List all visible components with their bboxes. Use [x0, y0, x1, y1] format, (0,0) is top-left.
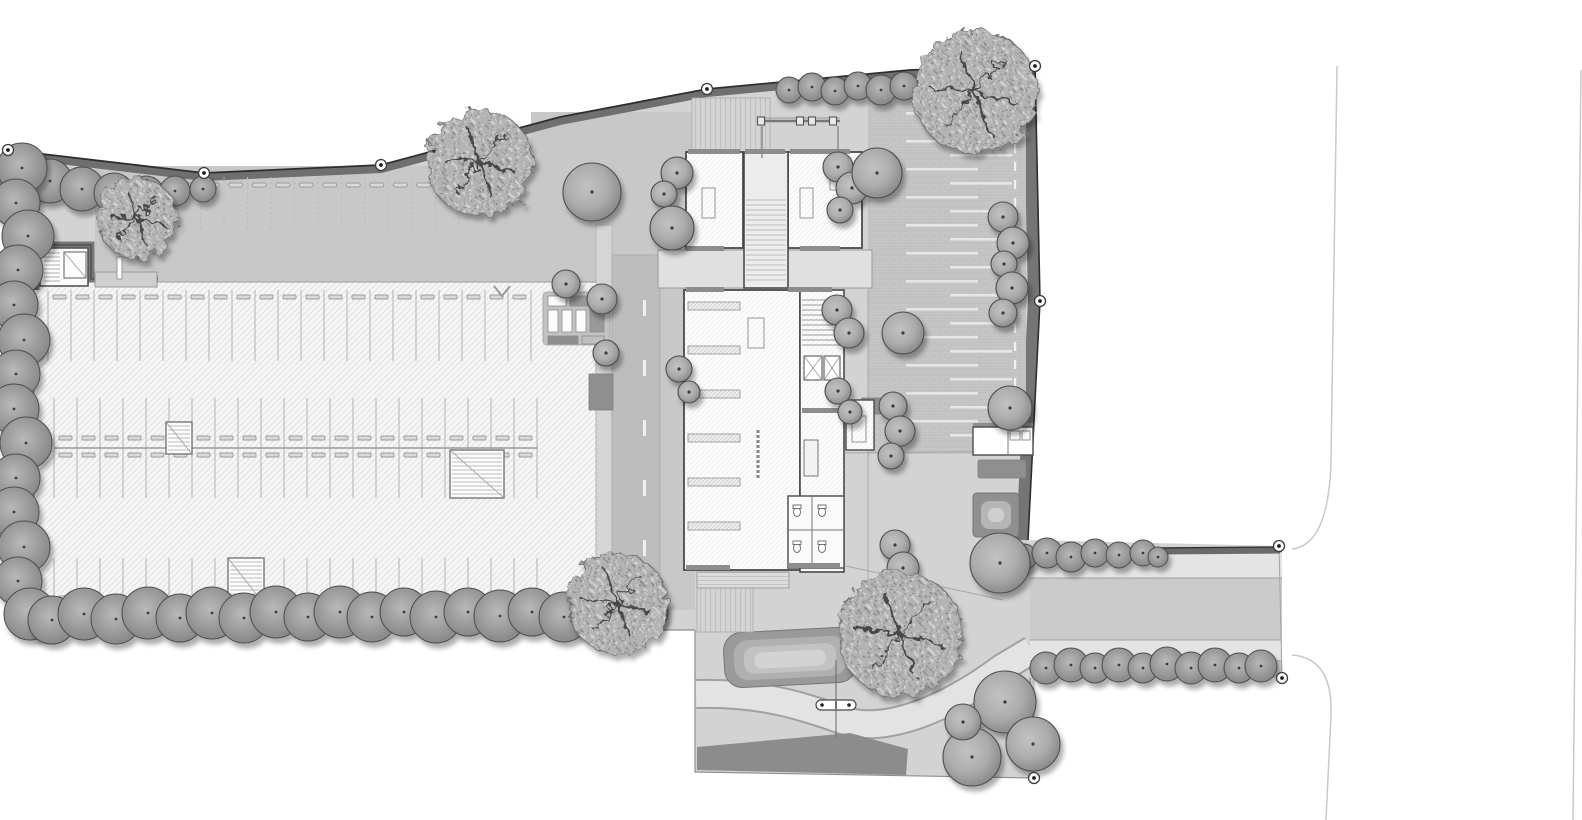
tree-center-dot — [590, 190, 593, 193]
grass-joint-stripe — [906, 280, 978, 283]
wall-sill — [788, 287, 832, 292]
wall-sill — [686, 565, 730, 570]
wheel-stop — [306, 295, 319, 299]
wheel-stop — [427, 453, 440, 457]
grass-joint-stripe — [950, 154, 1012, 157]
wheel-stop — [513, 295, 526, 299]
shrub-center-dot — [403, 611, 406, 614]
tree-center-dot — [600, 297, 603, 300]
wheel-stop — [381, 453, 394, 457]
wheel-stop — [358, 453, 371, 457]
wheel-stop — [214, 295, 227, 299]
wheel-stop — [59, 436, 72, 440]
shrub-center-dot — [211, 612, 214, 615]
tree-trunk-dot — [477, 160, 483, 166]
survey-marker — [199, 168, 210, 179]
shrub-center-dot — [15, 202, 18, 205]
tree-trunk-dot — [614, 600, 620, 606]
tree-center-dot — [889, 454, 892, 457]
shrub-center-dot — [21, 167, 24, 170]
tree-center-dot — [836, 389, 839, 392]
tree-center-dot — [1010, 286, 1013, 289]
wheel-stop — [128, 436, 141, 440]
wheel-stop — [496, 436, 509, 440]
shrub-center-dot — [880, 89, 883, 92]
tree-fluffy-wrap — [913, 30, 1037, 154]
tree-center-dot — [847, 331, 850, 334]
shrub-center-dot — [243, 617, 246, 620]
shrub-center-dot — [1046, 552, 1049, 555]
shrub-center-dot — [202, 188, 205, 191]
edge-dash — [1014, 180, 1016, 189]
survey-marker — [702, 84, 713, 95]
grass-joint-stripe — [906, 420, 978, 423]
survey-marker-dot — [1033, 64, 1037, 68]
grass-joint-stripe — [906, 308, 978, 311]
edge-dash — [1014, 162, 1016, 171]
shrub-center-dot — [49, 180, 52, 183]
wheel-stop — [370, 183, 384, 187]
bench — [688, 346, 740, 354]
wheel-stop — [335, 453, 348, 457]
wheel-stop — [519, 436, 532, 440]
shrub-center-dot — [788, 89, 791, 92]
wheel-stop — [128, 453, 141, 457]
shrub-center-dot — [81, 188, 84, 191]
wall-sill — [686, 246, 724, 251]
wheel-stop — [404, 436, 417, 440]
wheel-stop — [329, 295, 342, 299]
toilet-tank — [818, 505, 826, 509]
tree-center-dot — [1002, 262, 1005, 265]
survey-marker — [3, 145, 14, 156]
shrub-center-dot — [1142, 552, 1145, 555]
survey-marker — [1030, 61, 1041, 72]
toilet-tank — [793, 541, 801, 545]
wheel-stop — [243, 436, 256, 440]
lane-dash — [643, 360, 646, 376]
grass-joint-stripe — [950, 378, 1012, 381]
shrub-center-dot — [499, 615, 502, 618]
shrub-center-dot — [17, 269, 20, 272]
shrub-center-dot — [857, 85, 860, 88]
tree-center-dot — [687, 390, 690, 393]
tree-center-dot — [875, 171, 878, 174]
planting-bed — [589, 374, 613, 410]
tree-fluffy — [427, 110, 533, 216]
street-curb-line — [1292, 655, 1331, 820]
stair-core — [166, 422, 192, 454]
planter-box — [576, 310, 586, 332]
grass-joint-stripe — [906, 392, 978, 395]
shrub-center-dot — [435, 616, 438, 619]
grass-joint-stripe — [906, 364, 978, 367]
tree-center-dot — [961, 720, 964, 723]
survey-marker-dot — [1032, 776, 1036, 780]
rain-garden — [723, 627, 858, 689]
tree-center-dot — [670, 226, 673, 229]
shrub-center-dot — [307, 616, 310, 619]
shrub-center-dot — [531, 611, 534, 614]
tree-center-dot — [835, 308, 838, 311]
tree-trunk-dot — [897, 631, 903, 637]
tree-fluffy-wrap — [567, 553, 667, 653]
tree-center-dot — [848, 410, 851, 413]
pergola-post — [830, 117, 837, 125]
tree-trunk-dot — [134, 215, 140, 221]
edge-dash — [1014, 378, 1016, 387]
parking-garage — [34, 245, 596, 612]
paved-notch — [95, 272, 157, 287]
pergola-post — [797, 117, 804, 125]
wheel-stop — [122, 295, 135, 299]
shrub-center-dot — [563, 616, 566, 619]
entry-steps — [697, 572, 789, 588]
planter-box — [562, 310, 572, 332]
wheel-stop — [151, 453, 164, 457]
shrub-center-dot — [115, 618, 118, 621]
wheel-stop — [197, 436, 210, 440]
grass-joint-stripe — [906, 168, 978, 171]
wheel-stop — [266, 453, 279, 457]
lane-dash — [643, 540, 646, 556]
pergola-post — [809, 117, 816, 125]
shrub-center-dot — [1070, 664, 1073, 667]
tree-fluffy — [97, 178, 177, 258]
wheel-stop — [450, 436, 463, 440]
shrub-center-dot — [811, 86, 814, 89]
wheel-stop — [312, 453, 325, 457]
survey-marker — [1277, 673, 1288, 684]
wheel-stop — [276, 183, 290, 187]
wheel-stop — [358, 436, 371, 440]
wheel-stop — [145, 295, 158, 299]
shrub-center-dot — [15, 373, 18, 376]
grass-joint-stripe — [906, 252, 978, 255]
shrub-center-dot — [1094, 667, 1097, 670]
wheel-stop — [467, 295, 480, 299]
edge-dash — [1014, 342, 1016, 351]
survey-marker — [1029, 773, 1040, 784]
shrub-center-dot — [13, 304, 16, 307]
tree-center-dot — [1001, 311, 1004, 314]
shrub-center-dot — [371, 616, 374, 619]
shrub-center-dot — [174, 190, 177, 193]
shrub-center-dot — [17, 580, 20, 583]
shrub-center-dot — [903, 85, 906, 88]
wheel-stop — [99, 295, 112, 299]
tree-center-dot — [901, 331, 904, 334]
shrub-center-dot — [467, 611, 470, 614]
wheel-stop — [323, 183, 337, 187]
tree-center-dot — [970, 755, 973, 758]
tree-center-dot — [675, 171, 678, 174]
wall-sill — [788, 563, 840, 568]
shrub-center-dot — [13, 511, 16, 514]
bench — [688, 522, 740, 530]
tree-fluffy-wrap — [838, 572, 962, 696]
tree-center-dot — [898, 429, 901, 432]
vent-slot — [117, 257, 122, 279]
edge-dash — [1014, 360, 1016, 369]
wheel-stop — [404, 453, 417, 457]
tree-center-dot — [1003, 700, 1006, 703]
wheel-stop — [421, 295, 434, 299]
toilet-tank — [793, 505, 801, 509]
street-curb-line — [1573, 70, 1581, 820]
shrub-center-dot — [1238, 667, 1241, 670]
stair-core — [450, 450, 504, 498]
tree-center-dot — [893, 543, 896, 546]
wheel-stop — [82, 436, 95, 440]
sign-post-dot — [847, 703, 851, 707]
wheel-stop — [283, 295, 296, 299]
survey-marker-dot — [379, 163, 383, 167]
tree-center-dot — [1011, 241, 1014, 244]
wheel-stop — [417, 183, 431, 187]
shrub-center-dot — [179, 617, 182, 620]
tree-center-dot — [836, 165, 839, 168]
shrub-center-dot — [27, 235, 30, 238]
wheel-stop — [197, 453, 210, 457]
tree-trunk-dot — [972, 89, 978, 95]
tree-center-dot — [891, 404, 894, 407]
shrub-center-dot — [1260, 665, 1263, 668]
bench — [688, 302, 740, 310]
shrub-center-dot — [1118, 554, 1121, 557]
bench — [688, 478, 740, 486]
tree-center-dot — [662, 192, 665, 195]
tree-fluffy — [567, 553, 667, 653]
wheel-stop — [299, 183, 313, 187]
wheel-stop — [237, 295, 250, 299]
grass-joint-stripe — [950, 182, 1012, 185]
wheel-stop — [76, 295, 89, 299]
sign-post-dot — [820, 703, 824, 707]
garage-slab — [34, 282, 596, 612]
survey-marker-dot — [1277, 544, 1281, 548]
access-road-band — [1030, 578, 1282, 640]
street-curb-line — [1292, 66, 1337, 549]
wheel-stop — [59, 453, 72, 457]
tree-fluffy — [838, 572, 962, 696]
tree-center-dot — [1031, 742, 1034, 745]
tree-fluffy-wrap — [97, 178, 177, 258]
grass-joint-stripe — [906, 224, 978, 227]
tree-center-dot — [998, 561, 1001, 564]
building-room — [686, 152, 743, 248]
tree-center-dot — [604, 351, 607, 354]
wheel-stop — [105, 436, 118, 440]
bench — [688, 434, 740, 442]
tree-center-dot — [850, 186, 853, 189]
tree-center-dot — [1001, 215, 1004, 218]
survey-marker-dot — [1038, 299, 1042, 303]
shrub-center-dot — [1045, 667, 1048, 670]
north-deck — [692, 98, 770, 156]
shrub-center-dot — [147, 612, 150, 615]
shrub-center-dot — [1157, 556, 1160, 559]
lane-dash — [643, 420, 646, 436]
edge-dash — [1014, 324, 1016, 333]
south-deck — [697, 588, 753, 632]
tree-fluffy — [913, 30, 1037, 154]
shrub-center-dot — [1094, 552, 1097, 555]
planter-box — [548, 336, 578, 344]
shrub-center-dot — [13, 408, 16, 411]
wheel-stop — [473, 436, 486, 440]
wall-sill — [802, 408, 842, 413]
wheel-stop — [168, 295, 181, 299]
grass-joint-stripe — [950, 350, 1012, 353]
shrub-center-dot — [275, 611, 278, 614]
pergola-post — [758, 117, 765, 125]
wheel-stop — [105, 453, 118, 457]
shrub-center-dot — [83, 613, 86, 616]
shrub-center-dot — [1070, 556, 1073, 559]
survey-marker-dot — [6, 148, 10, 152]
site-plan-drawing — [0, 0, 1582, 820]
wheel-stop — [53, 295, 66, 299]
wheel-stop — [229, 183, 243, 187]
lane-dash — [643, 480, 646, 496]
shrub-center-dot — [23, 546, 26, 549]
edge-dash — [1014, 144, 1016, 153]
planting-bed — [978, 460, 1026, 478]
survey-marker — [1035, 296, 1046, 307]
wheel-stop — [151, 436, 164, 440]
wheel-stop — [191, 295, 204, 299]
shrub-center-dot — [23, 339, 26, 342]
shrub-center-dot — [834, 90, 837, 93]
edge-dash — [1014, 198, 1016, 207]
shrub-center-dot — [1118, 664, 1121, 667]
wheel-stop — [289, 453, 302, 457]
survey-marker — [1274, 541, 1285, 552]
tree-fluffy-wrap — [427, 110, 533, 216]
wheel-stop — [252, 183, 266, 187]
grass-joint-stripe — [906, 196, 978, 199]
shrub-center-dot — [15, 477, 18, 480]
wheel-stop — [82, 453, 95, 457]
wheel-stop — [519, 453, 532, 457]
shrub-center-dot — [25, 442, 28, 445]
wheel-stop — [381, 436, 394, 440]
wheel-stop — [352, 295, 365, 299]
shrub-center-dot — [1166, 663, 1169, 666]
planter-box — [548, 310, 558, 332]
wheel-stop — [398, 295, 411, 299]
wheel-stop — [243, 453, 256, 457]
survey-marker-dot — [705, 87, 709, 91]
tree-center-dot — [1008, 406, 1011, 409]
shrub-center-dot — [51, 619, 54, 622]
wheel-stop — [444, 295, 457, 299]
tree-center-dot — [677, 367, 680, 370]
wheel-stop — [427, 436, 440, 440]
garden-bed-core — [988, 508, 1004, 522]
survey-marker-dot — [202, 171, 206, 175]
wheel-stop — [393, 183, 407, 187]
wheel-stop — [335, 436, 348, 440]
lane-dash — [643, 300, 646, 316]
wheel-stop — [289, 436, 302, 440]
paved-walk — [596, 225, 612, 610]
wall-sill — [800, 246, 840, 251]
tree-center-dot — [838, 208, 841, 211]
wall-sill — [688, 149, 740, 154]
wheel-stop — [375, 295, 388, 299]
shrub-center-dot — [339, 611, 342, 614]
wheel-stop — [312, 436, 325, 440]
wheel-stop — [220, 436, 233, 440]
wall-sill — [745, 149, 785, 154]
shrub-center-dot — [1142, 667, 1145, 670]
wheel-stop — [266, 436, 279, 440]
shrub-center-dot — [1214, 664, 1217, 667]
kitchen-counter — [804, 440, 818, 476]
toilet-tank — [818, 541, 826, 545]
wheel-stop — [220, 453, 233, 457]
wheel-stop — [346, 183, 360, 187]
site-plan-canvas — [0, 0, 1582, 820]
tree-center-dot — [901, 566, 904, 569]
wheel-stop — [260, 295, 273, 299]
survey-marker-dot — [1280, 676, 1284, 680]
tree-center-dot — [564, 282, 567, 285]
survey-marker — [376, 160, 387, 171]
shrub-center-dot — [1190, 667, 1193, 670]
wall-sill — [686, 287, 724, 292]
